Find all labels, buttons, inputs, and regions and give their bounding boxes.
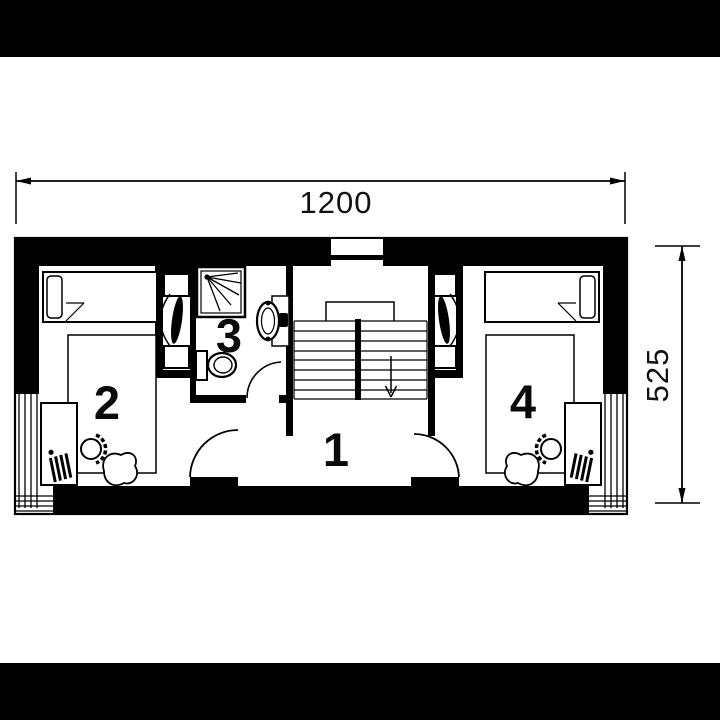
door-jamb (164, 346, 189, 368)
dim-height-label: 525 (640, 348, 675, 403)
door-jamb (434, 346, 456, 368)
floor-plan-image: 1200 525 (0, 0, 720, 720)
hall-threshold-right (411, 477, 459, 486)
letterbox-bottom (0, 663, 720, 720)
room-label-right-bedroom: 4 (510, 375, 536, 428)
floor-plan-svg: 1200 525 (0, 0, 720, 720)
stairwell-wall-left (286, 266, 293, 436)
dim-arrow-left (16, 178, 31, 185)
building: 1 2 3 4 (15, 238, 627, 514)
dimension-width: 1200 (16, 172, 625, 224)
room-label-left-bedroom: 2 (94, 376, 120, 429)
door-jamb (434, 274, 456, 296)
pillow-icon (47, 276, 62, 318)
letterbox-top (0, 0, 720, 57)
room-label-bathroom: 3 (216, 309, 242, 362)
dim-arrow-bottom (679, 488, 686, 503)
dim-width-label: 1200 (300, 185, 373, 220)
dim-arrow-top (679, 246, 686, 261)
stair-center-rail (355, 319, 361, 400)
dimension-height: 525 (640, 246, 700, 503)
beanbag-icon (103, 453, 137, 485)
hall-threshold-left (190, 477, 238, 486)
dim-arrow-right (610, 178, 625, 185)
room-label-hall: 1 (323, 423, 349, 476)
faucet (279, 313, 288, 327)
pillow-icon (580, 276, 595, 318)
door-jamb (164, 274, 189, 296)
beanbag-icon (505, 453, 539, 485)
window-top (331, 239, 383, 266)
